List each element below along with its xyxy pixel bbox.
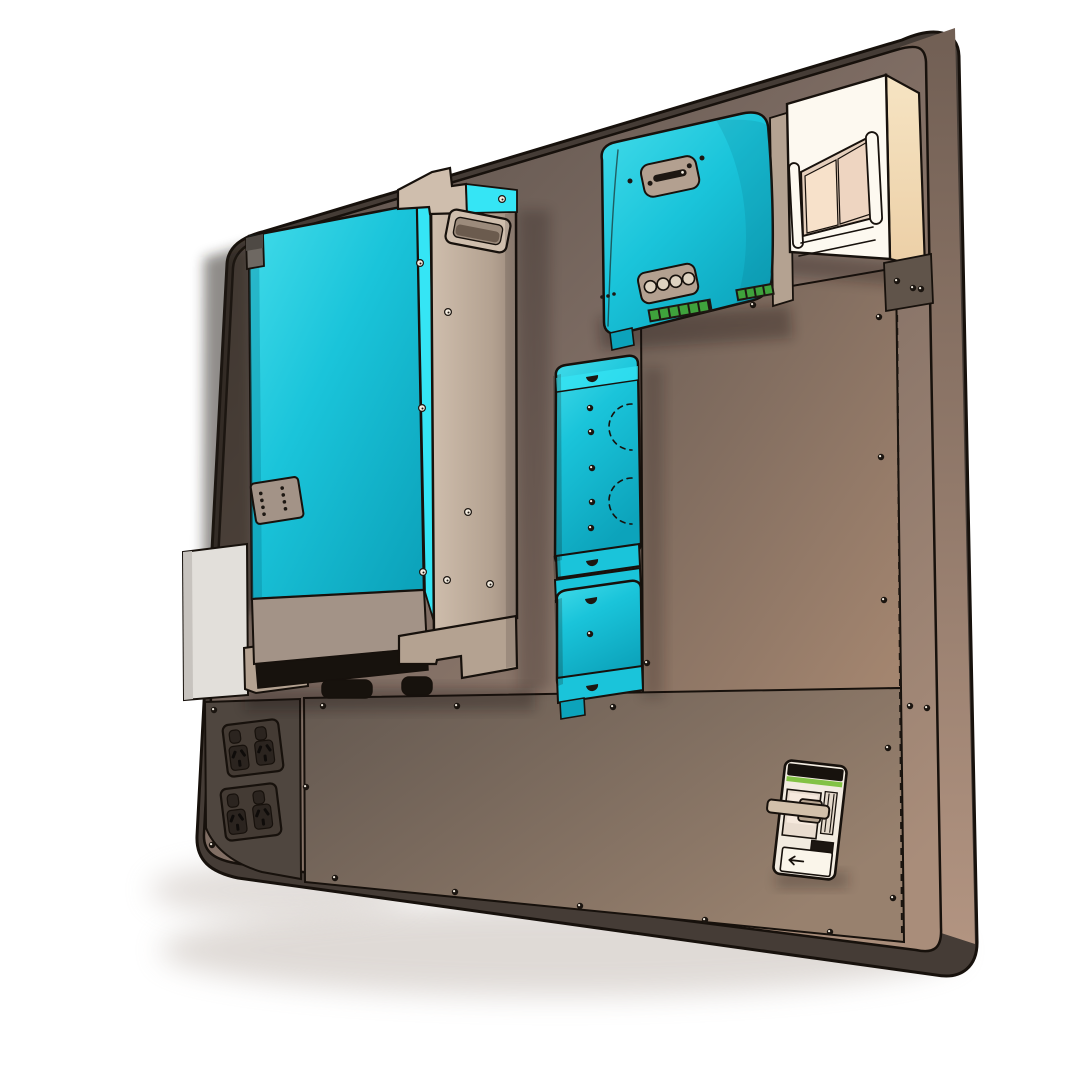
breaker-label-plate xyxy=(780,847,832,877)
socket-left xyxy=(227,809,248,835)
left-side-enclosure xyxy=(183,544,248,700)
inverter-charger xyxy=(244,168,517,698)
dc-junction-boxes xyxy=(553,356,643,719)
render-canvas xyxy=(0,0,1080,1080)
enclosure-bracket xyxy=(884,254,933,311)
power-outlet-top xyxy=(222,719,284,777)
dc-box-lower-tab xyxy=(560,698,585,719)
socket-right xyxy=(252,804,273,830)
mppt-face-hole-right xyxy=(700,156,705,161)
inverter-front-panel xyxy=(249,204,424,599)
socket-right xyxy=(254,740,275,766)
inverter-top-cyan-band xyxy=(466,184,517,213)
inverter-status-panel xyxy=(250,476,304,524)
enclosure-side-face xyxy=(886,75,925,268)
power-outlet-bottom xyxy=(220,783,282,841)
mppt-face-hole-left xyxy=(628,179,633,184)
inverter-top-clip xyxy=(246,234,264,269)
dc-box-upper xyxy=(553,356,641,579)
inverter-side-channel xyxy=(431,199,517,640)
socket-left xyxy=(229,745,250,771)
power-board-render xyxy=(0,0,1080,1080)
